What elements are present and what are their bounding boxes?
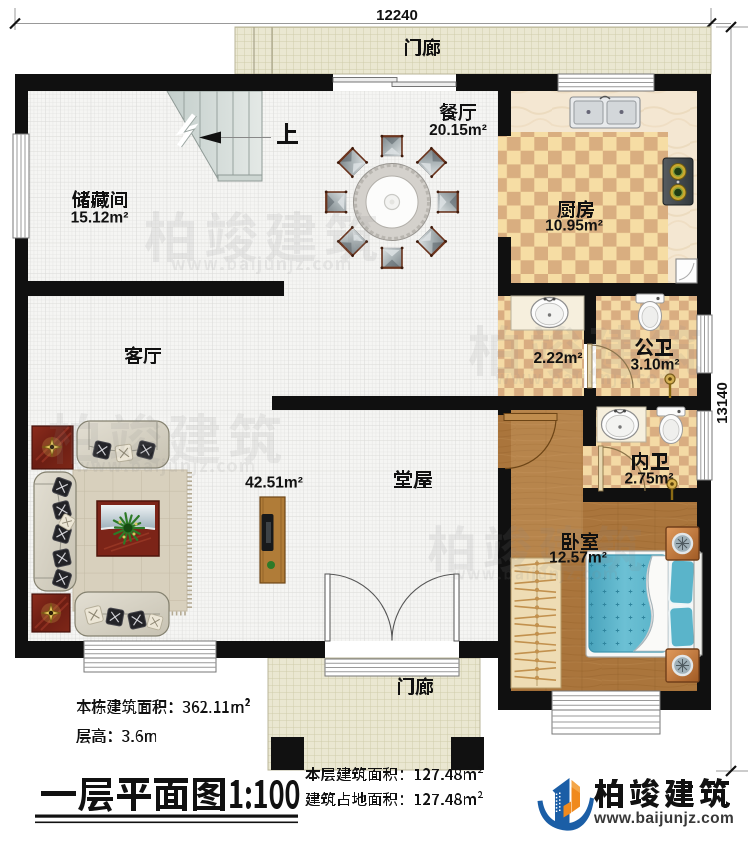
svg-text:10.95m²: 10.95m² [545,218,603,235]
svg-text:13140: 13140 [714,382,731,424]
svg-text:42.51m²: 42.51m² [245,475,303,492]
svg-text:www.baijunjz.com: www.baijunjz.com [593,810,734,827]
svg-text:3.10m²: 3.10m² [630,357,679,374]
svg-text:2.75m²: 2.75m² [624,471,673,488]
svg-text:12.57m²: 12.57m² [549,550,607,567]
svg-text:2.22m²: 2.22m² [533,350,582,367]
svg-text:20.15m²: 20.15m² [429,122,487,139]
svg-text:15.12m²: 15.12m² [71,210,129,227]
svg-text:12240: 12240 [376,7,418,24]
